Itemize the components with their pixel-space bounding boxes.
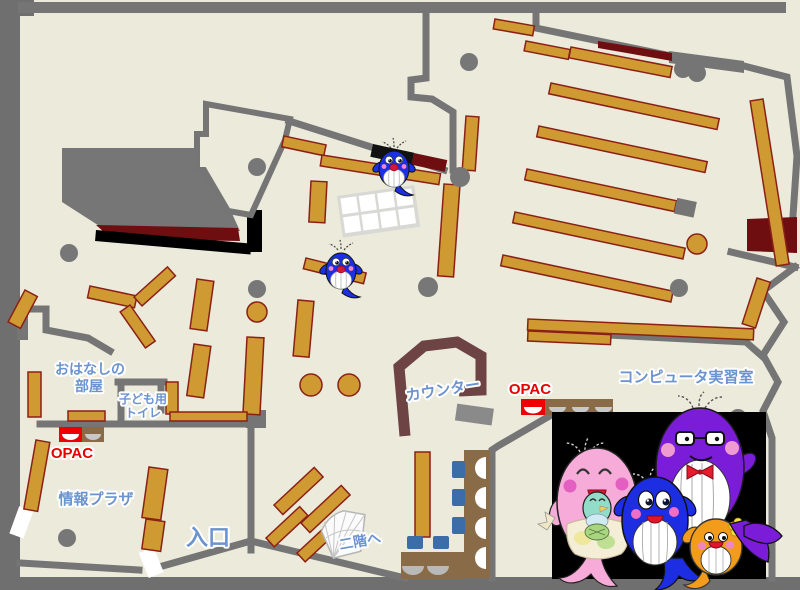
pillar-icon (460, 53, 478, 71)
library-floor-map: おはなしの 部屋 子ども用 トイレ OPAC 情報プラザ 入口 二階へ カウンタ… (0, 0, 800, 590)
pillar-icon (58, 529, 76, 547)
pillar-icon (60, 244, 78, 262)
label-computer-room: コンピュータ実習室 (618, 368, 753, 386)
round-table-icon (247, 302, 267, 322)
bookshelf (68, 411, 105, 421)
floor-map-canvas: おはなしの 部屋 子ども用 トイレ OPAC 情報プラザ 入口 二階へ カウンタ… (0, 0, 800, 590)
round-table-icon (300, 374, 322, 396)
bookshelf (415, 452, 430, 537)
round-table-icon (338, 374, 360, 396)
baby-whale-mascot (583, 492, 611, 540)
mascot-family-image (538, 392, 782, 590)
bookshelf (28, 372, 41, 417)
bookshelf (243, 337, 264, 415)
pillar-icon (450, 167, 470, 187)
wall (0, 0, 20, 590)
opac-terminal-icon (59, 427, 104, 442)
round-table-icon (687, 234, 707, 254)
pillar-icon (248, 280, 266, 298)
bookshelf (142, 519, 165, 551)
label-story-room-line1: おはなしの (55, 361, 125, 377)
label-info-plaza: 情報プラザ (58, 490, 133, 508)
label-opac-2: OPAC (509, 381, 551, 398)
label-story-room-line2: 部屋 (75, 378, 103, 394)
label-kids-toilet-line1: 子ども用 (119, 392, 167, 406)
bookshelf (166, 382, 178, 414)
pillar-icon (248, 158, 266, 176)
pillar-icon (418, 277, 438, 297)
bookshelf (170, 412, 247, 421)
wall (18, 2, 786, 13)
bookshelf (462, 116, 479, 171)
pillar-icon (670, 279, 688, 297)
label-kids-toilet-line2: トイレ (125, 406, 161, 420)
label-opac-1: OPAC (51, 445, 93, 462)
label-entrance: 入口 (186, 525, 230, 550)
bookshelf (309, 181, 327, 223)
